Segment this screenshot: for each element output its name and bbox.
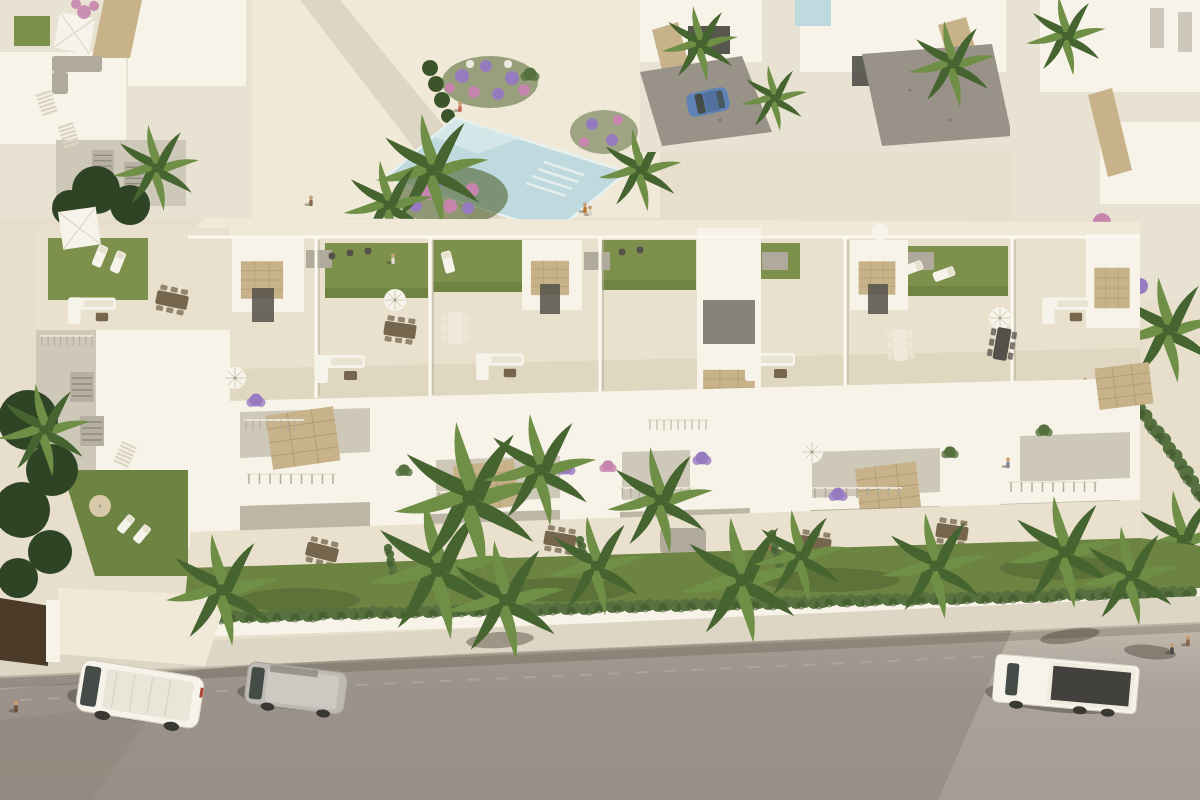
round-table xyxy=(871,223,889,241)
rear-townhouse-row xyxy=(0,0,252,226)
aerial-render: : xyxy=(0,0,1200,800)
dark-gate xyxy=(0,598,50,666)
roof-parasol xyxy=(384,289,406,311)
utility-box xyxy=(584,252,610,270)
detached-villas xyxy=(640,0,1012,152)
roof-parasol xyxy=(989,307,1011,329)
balcony-parasol xyxy=(801,441,823,463)
flower-bed xyxy=(570,110,638,154)
grey-sofa xyxy=(52,56,102,72)
rear-row-wall xyxy=(128,0,246,86)
stair-bulkhead xyxy=(1086,234,1140,328)
roof-door xyxy=(540,284,560,314)
patio-parasol xyxy=(224,367,246,389)
stone-canopy xyxy=(266,406,341,470)
dining-set xyxy=(382,315,417,345)
square-parasol xyxy=(54,12,96,54)
shuttered-window xyxy=(70,372,94,402)
render-canvas: : xyxy=(0,0,1200,800)
gate-pillar xyxy=(46,600,60,662)
roof-door xyxy=(252,288,274,322)
stone-canopy xyxy=(1094,362,1153,410)
roof-door xyxy=(703,300,755,344)
window xyxy=(1178,12,1192,52)
square-parasol xyxy=(58,207,101,250)
rear-roof-lawn xyxy=(14,16,50,46)
white-dining-set xyxy=(886,328,914,362)
garden-parasol xyxy=(89,495,111,517)
driveway-apron xyxy=(58,588,228,666)
balcony-railing xyxy=(40,336,94,346)
shuttered-window xyxy=(80,416,104,446)
white-dining-set xyxy=(442,312,468,344)
private-pool xyxy=(795,0,831,26)
window xyxy=(1150,8,1164,48)
townhouse-row xyxy=(36,202,1154,576)
grey-sofa xyxy=(52,72,68,94)
roof-door xyxy=(868,284,888,314)
utility-box xyxy=(762,252,788,270)
gravel-driveway xyxy=(862,44,1012,146)
